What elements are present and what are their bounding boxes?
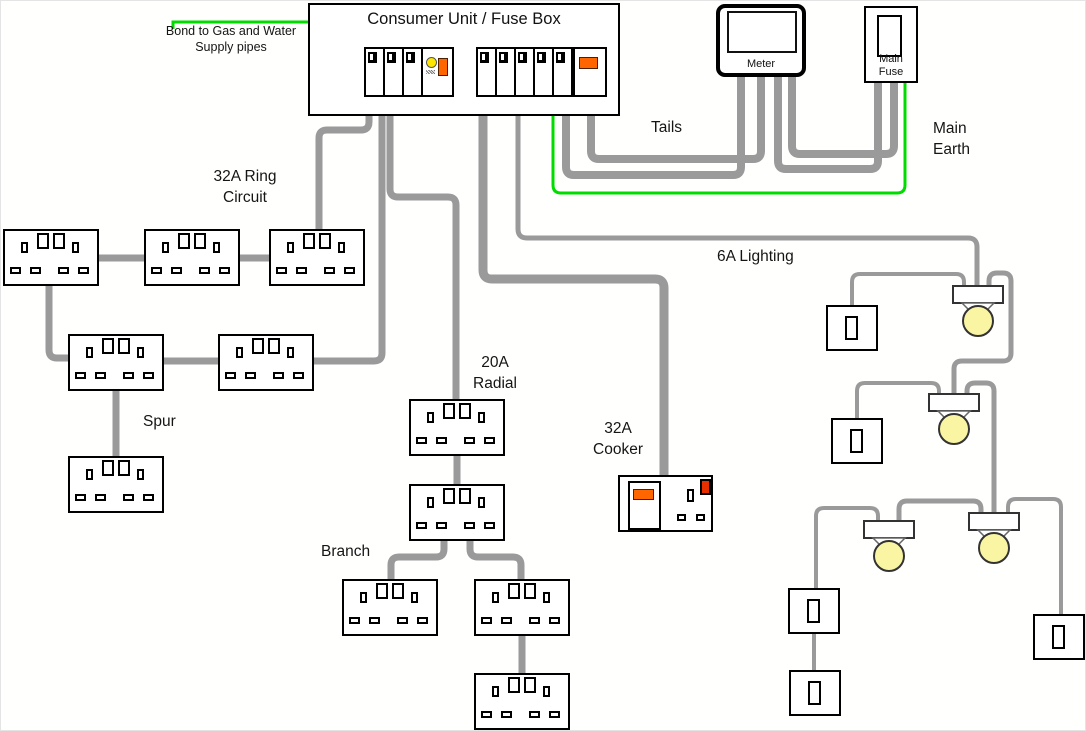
ceiling-light-2	[929, 394, 979, 444]
ceiling-rose	[864, 521, 914, 538]
ceiling-rose	[929, 394, 979, 411]
bonding-wire	[173, 22, 312, 29]
light-bulb	[963, 306, 993, 336]
light-bulb	[979, 533, 1009, 563]
wiring-diagram: Consumer Unit / Fuse Box Meter	[0, 0, 1086, 731]
light-bulb	[874, 541, 904, 571]
tail-wire-2	[591, 75, 761, 159]
switch1-drop-wire	[852, 274, 964, 309]
radial-feed-wire	[390, 111, 456, 403]
cooker-wire	[483, 111, 664, 479]
branch-left-wire	[391, 537, 444, 583]
ceiling-light-1	[953, 286, 1003, 336]
ring-drop-wire	[49, 282, 72, 358]
branch-right-wire	[470, 537, 521, 583]
ceiling-light-4	[864, 521, 914, 571]
ceiling-rose	[953, 286, 1003, 303]
lighting-feed-wire	[518, 111, 977, 292]
ceiling-light-3	[969, 513, 1019, 563]
ring-feed-wire	[319, 111, 369, 233]
wires-layer	[1, 1, 1086, 731]
switch2-drop-wire	[857, 383, 939, 422]
ceiling-rose	[969, 513, 1019, 530]
light-bulb	[939, 414, 969, 444]
